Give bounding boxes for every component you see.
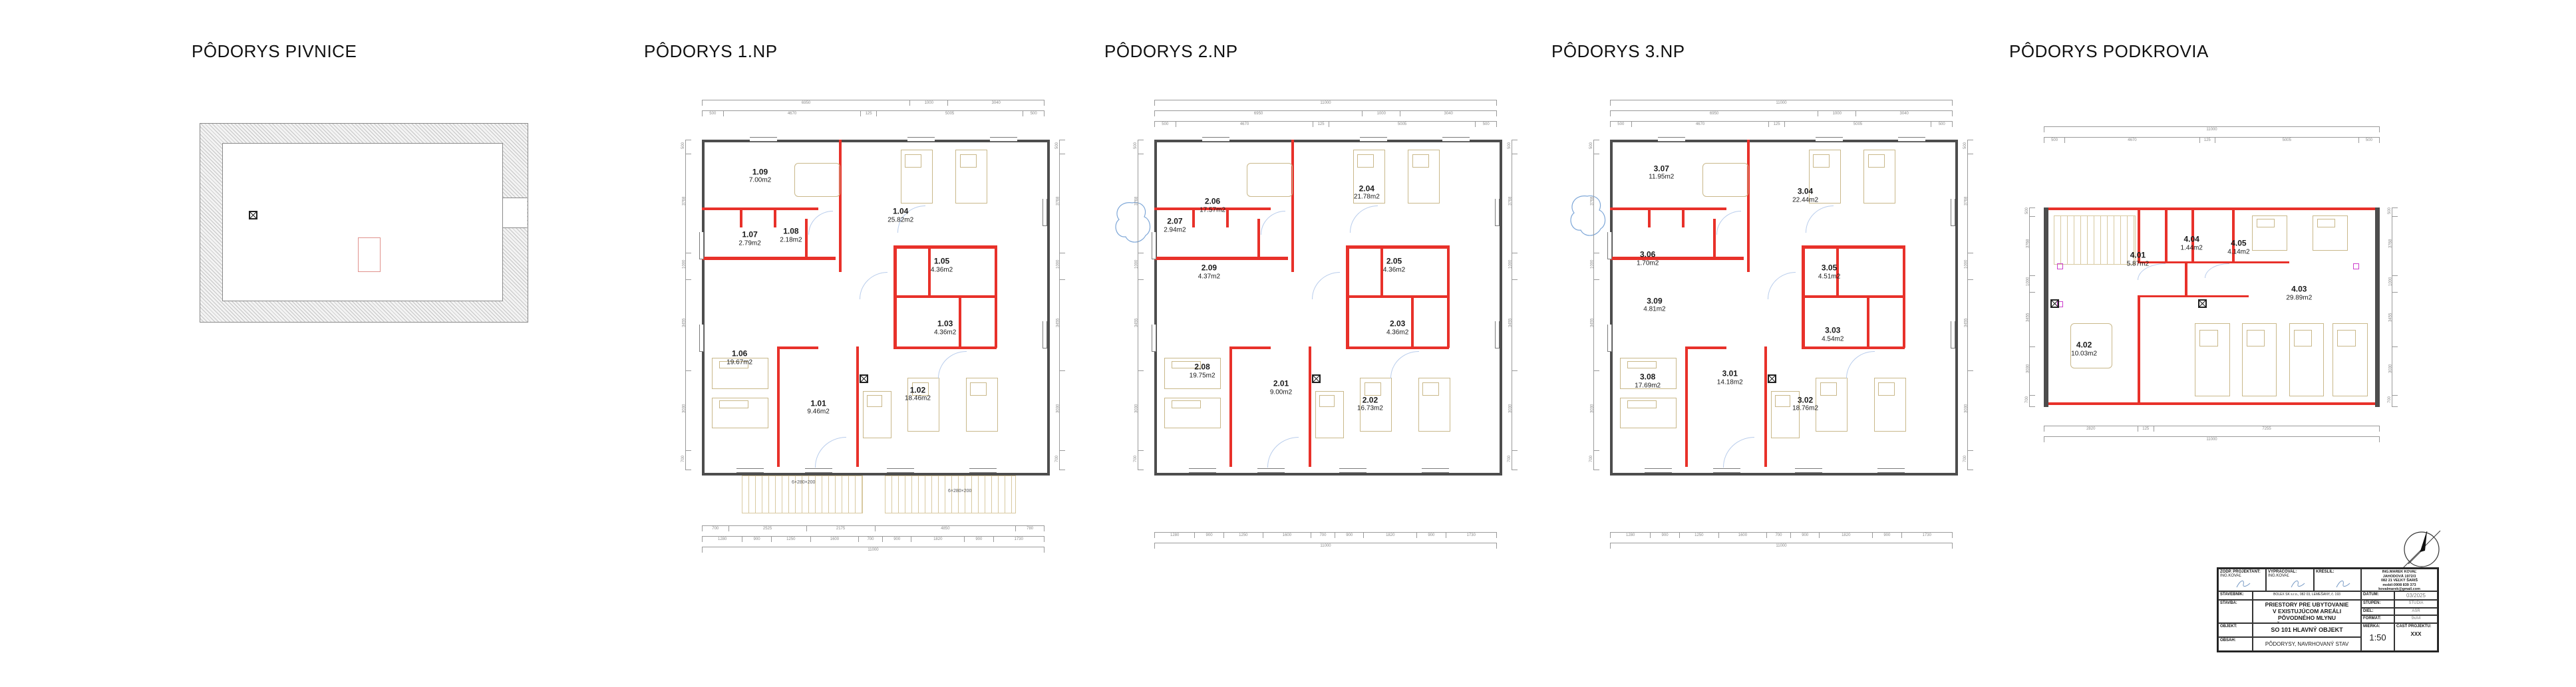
dimension-label: 11000 (1610, 100, 1953, 106)
dimension-label: 1820 (1364, 532, 1417, 538)
floorplan-1np: 1.019.46m21.0218.46m21.034.36m21.0425.82… (702, 140, 1045, 470)
tb-diel-value: ASR (2394, 608, 2438, 615)
dimension-label: 700 (1311, 532, 1335, 538)
dimension-chain: 695010003040 (1610, 110, 1953, 116)
tb-cast-label: ČASŤ PROJEKTU: (2396, 624, 2436, 628)
dimension-label: 1250 (1224, 532, 1263, 538)
tree-icon (1112, 200, 1152, 246)
tb-datum-value: 03/2025 (2394, 591, 2438, 600)
dimension-label: 6950 (702, 100, 910, 106)
dimension-label: 700 (1059, 451, 1065, 470)
room-label: 2.034.36m2 (1386, 320, 1408, 337)
dimension-total: 11000 (2044, 126, 2380, 132)
dimension-label: 500 (685, 140, 691, 154)
window-icon (1877, 468, 1905, 473)
new-wall (893, 346, 997, 349)
window-icon (1898, 137, 1925, 142)
dimension-label: 500 (1931, 121, 1953, 127)
tb-stavba-cell: PRIESTORY PRE UBYTOVANIE V EXISTUJÚCOM A… (2253, 600, 2361, 623)
new-wall (1346, 245, 1449, 248)
dimension-label: 1280 (1154, 532, 1195, 538)
dimension-label: 3040 (1400, 110, 1497, 116)
new-wall (1903, 245, 1905, 348)
dimension-label: 1000 (1967, 253, 1973, 280)
dimension-label: 1600 (1263, 532, 1311, 538)
room-label: 3.0422.44m2 (1792, 188, 1818, 204)
plan-title-2np: PÔDORYS 2.NP (1104, 41, 1238, 62)
new-wall (1802, 245, 1905, 248)
window-icon (1645, 468, 1672, 473)
bed-furniture (1874, 378, 1906, 432)
dimension-chain: 5003768100034553030700 (1967, 140, 1973, 470)
window-icon (736, 468, 764, 473)
room-label: 3.061.70m2 (1637, 250, 1659, 267)
bed-furniture (2242, 323, 2277, 396)
room-label: 3.0711.95m2 (1649, 164, 1674, 181)
window-icon (1951, 321, 1955, 348)
room-label: 1.082.18m2 (780, 227, 802, 243)
room-label: 1.034.36m2 (934, 320, 956, 337)
new-wall (1682, 207, 1685, 227)
dimension-label: 1730 (1902, 532, 1953, 538)
new-wall (1802, 346, 1905, 349)
room-label: 3.034.54m2 (1822, 327, 1844, 343)
room-label: 4.054.14m2 (2227, 239, 2249, 255)
new-wall (856, 346, 859, 467)
room-label: 2.0819.75m2 (1190, 362, 1215, 379)
bed-furniture (1863, 150, 1895, 204)
new-wall (805, 219, 808, 260)
dimension-label: 11000 (2044, 436, 2380, 442)
door-swing (2205, 263, 2229, 278)
room-label: 1.0218.46m2 (905, 386, 931, 402)
bed-furniture (2252, 215, 2287, 251)
window-icon (907, 137, 935, 142)
dining-table-furniture (1702, 163, 1748, 198)
window-icon (699, 325, 704, 352)
dimension-total: 11000 (1154, 100, 1497, 106)
new-wall (774, 207, 776, 227)
dimension-label: 1730 (1446, 532, 1498, 538)
column-marker-icon (2198, 299, 2207, 308)
floorplan-2np: 2.019.00m22.0216.73m22.034.36m22.0421.78… (1154, 140, 1497, 470)
dimension-label: 700 (1512, 451, 1518, 470)
dimension-chain: 700252521754850780 (702, 525, 1045, 531)
dimension-label: 500 (2029, 207, 2035, 217)
dimension-total: 11000 (2044, 436, 2380, 442)
window-icon (1360, 137, 1387, 142)
new-wall (893, 295, 997, 298)
dimension-label: 4670 (1632, 121, 1770, 127)
dimension-label: 7255 (2154, 426, 2380, 432)
window-icon (1152, 325, 1156, 352)
dimension-label: 900 (1651, 532, 1679, 538)
dimension-label: 1250 (772, 536, 811, 542)
room-label: 2.0617.57m2 (1200, 198, 1225, 214)
basement-red-feature (358, 237, 381, 272)
dimension-label: 900 (1417, 532, 1446, 538)
new-wall (2165, 207, 2168, 263)
dimension-label: 780 (1016, 525, 1045, 531)
tb-contact-phone: mobil:0908 839 373 (2363, 583, 2436, 588)
window-icon (699, 232, 704, 259)
dimension-label: 1600 (1719, 532, 1767, 538)
dimension-chain: 12809001250160070090018209001730 (1610, 532, 1953, 538)
dimension-label: 500 (1023, 110, 1045, 116)
room-label: 1.0425.82m2 (887, 207, 913, 224)
dimension-label: 3455 (1512, 280, 1518, 371)
column-marker-icon (1768, 374, 1776, 383)
dimension-chain: 50046701255005500 (1610, 121, 1953, 127)
tb-format-value: 9xA4 (2394, 615, 2438, 623)
room-label: 3.094.81m2 (1643, 297, 1665, 313)
dimension-chain: 5003768100034553030700 (1512, 140, 1518, 470)
column-marker-icon (1312, 374, 1321, 383)
room-label: 4.0210.03m2 (2071, 341, 2097, 357)
plan-title-pivnice: PÔDORYS PIVNICE (192, 41, 357, 62)
new-wall (839, 140, 842, 272)
new-wall (1447, 245, 1450, 348)
dimension-label: 1280 (702, 536, 742, 542)
floorplan-pivnice (200, 123, 527, 321)
dimension-label: 3455 (2392, 293, 2398, 347)
room-label: 3.054.51m2 (1818, 263, 1840, 280)
bed-furniture (1418, 378, 1450, 432)
stair-note: 6×280×200 (792, 480, 815, 485)
new-wall (1685, 346, 1726, 349)
new-wall (893, 245, 896, 348)
dimension-label: 11000 (1154, 543, 1497, 549)
dimension-label: 1820 (1820, 532, 1873, 538)
new-wall (1229, 346, 1271, 349)
dimension-label: 1000 (910, 100, 948, 106)
window-icon (750, 137, 777, 142)
new-wall (1685, 346, 1688, 467)
dimension-label: 500 (1512, 140, 1518, 154)
window-icon (1422, 468, 1449, 473)
dimension-label: 1820 (911, 536, 965, 542)
dimension-label: 1250 (1680, 532, 1719, 538)
dimension-label: 5005 (1785, 121, 1932, 127)
dimension-label: 11000 (1154, 100, 1497, 106)
dimension-label: 3040 (948, 100, 1045, 106)
bed-furniture (2333, 323, 2368, 396)
dimension-label: 3768 (1138, 154, 1144, 253)
bed-furniture (1164, 398, 1220, 429)
dimension-label: 5005 (1329, 121, 1476, 127)
dimension-label: 3455 (685, 280, 691, 371)
bed-furniture (2313, 215, 2348, 251)
dimension-label: 11000 (702, 547, 1045, 553)
existing-wall (2375, 207, 2380, 407)
dimension-label: 3455 (2029, 293, 2035, 347)
dimension-label: 4670 (2065, 137, 2200, 143)
new-wall (702, 257, 836, 259)
dimension-label: 1000 (685, 253, 691, 280)
dining-table-furniture (794, 163, 840, 198)
column-marker-icon (2050, 299, 2059, 308)
window-icon (990, 137, 1017, 142)
plan-title-1np: PÔDORYS 1.NP (644, 41, 778, 62)
dimension-label: 500 (1059, 140, 1065, 154)
dimension-label: 700 (685, 451, 691, 470)
dimension-total: 11000 (1154, 543, 1497, 549)
dimension-chain: 5003768100034553030700 (1138, 140, 1144, 470)
window-icon (1152, 232, 1156, 259)
dimension-total: 11000 (1610, 100, 1953, 106)
room-label: 2.019.00m2 (1270, 379, 1292, 396)
dimension-label: 700 (2029, 396, 2035, 407)
tb-diel-label: DIEL: (2361, 608, 2394, 615)
dimension-label: 3030 (1138, 371, 1144, 451)
dimension-label: 1280 (1610, 532, 1651, 538)
new-wall (1226, 207, 1229, 227)
new-wall (1610, 257, 1744, 259)
bed-furniture (2289, 323, 2325, 396)
dimension-label: 700 (1967, 451, 1973, 470)
dimension-label: 900 (1791, 532, 1820, 538)
new-wall (1747, 140, 1750, 272)
window-icon (1257, 468, 1285, 473)
window-icon (1607, 325, 1612, 352)
tb-zodp-cell: ZODP. PROJEKTANT: ING.KOVAĽ (2218, 569, 2266, 591)
magenta-marker-icon (2057, 263, 2063, 269)
dimension-label: 1730 (994, 536, 1045, 542)
new-wall (1346, 245, 1349, 348)
tb-mierka-label: MIERKA: (2363, 624, 2392, 628)
room-label: 1.072.79m2 (738, 230, 760, 247)
dimension-label: 900 (1873, 532, 1901, 538)
tb-mierka-value: 1:50 (2363, 632, 2392, 642)
floorplan-podkrovie: 4.015.87m24.0210.03m24.0329.89m24.041.44… (2044, 207, 2380, 407)
window-icon (1495, 321, 1500, 348)
bed-furniture (712, 398, 768, 429)
dimension-label: 3768 (2392, 217, 2398, 277)
tb-format-label: FORMÁT: (2361, 615, 2394, 623)
dimension-label: 5005 (2215, 137, 2359, 143)
dimension-label: 1000 (1059, 253, 1065, 280)
dimension-label: 700 (702, 525, 729, 531)
dimension-label: 1000 (1512, 253, 1518, 280)
new-wall (1802, 295, 1905, 298)
dimension-chain: 695010003040 (1154, 110, 1497, 116)
window-icon (969, 468, 997, 473)
tb-kreslil-label: KRESLIL: (2316, 570, 2359, 574)
dimension-label: 3455 (1138, 280, 1144, 371)
tb-objekt-label: OBJEKT: (2218, 623, 2253, 637)
room-label: 2.054.36m2 (1383, 257, 1405, 273)
dimension-label: 6950 (1154, 110, 1363, 116)
dimension-label: 3030 (2392, 347, 2398, 395)
dimension-label: 500 (1967, 140, 1973, 154)
dimension-label: 3030 (685, 371, 691, 451)
dimension-label: 125 (2138, 426, 2154, 432)
dimension-label: 3768 (1593, 154, 1599, 253)
new-wall (893, 245, 997, 248)
room-label: 4.041.44m2 (2181, 235, 2203, 251)
tb-stavba-line1: PRIESTORY PRE UBYTOVANIE (2255, 601, 2359, 608)
room-label: 3.0114.18m2 (1717, 369, 1743, 386)
tb-stavebnik-label: STAVEBNÍK: (2218, 591, 2253, 600)
new-wall (2138, 295, 2249, 297)
dimension-label: 1000 (1363, 110, 1400, 116)
bed-furniture (2195, 323, 2230, 396)
room-label: 3.0218.76m2 (1792, 396, 1818, 412)
tb-vypracoval-value: ING.KOVAĽ (2268, 574, 2312, 578)
tb-cast-value: XXX (2396, 631, 2436, 637)
new-wall (1867, 295, 1869, 348)
room-label: 1.097.00m2 (749, 168, 771, 184)
dimension-label: 500 (2392, 207, 2398, 217)
dimension-chain: 50046701255005500 (2044, 137, 2380, 143)
room-label: 2.072.94m2 (1164, 217, 1186, 234)
tb-cast-cell: ČASŤ PROJEKTU: XXX (2394, 623, 2438, 651)
dimension-label: 700 (1593, 451, 1599, 470)
dimension-label: 6950 (1610, 110, 1818, 116)
dimension-label: 900 (965, 536, 993, 542)
bed-furniture (955, 150, 987, 204)
room-label: 1.054.36m2 (931, 257, 953, 273)
magenta-marker-icon (2353, 263, 2359, 269)
dimension-label: 3768 (685, 154, 691, 253)
dimension-label: 1000 (1593, 253, 1599, 280)
window-icon (1607, 232, 1612, 259)
dimension-chain: 695010003040 (702, 100, 1045, 106)
dimension-label: 3768 (1059, 154, 1065, 253)
dimension-label: 500 (2359, 137, 2380, 143)
new-wall (702, 207, 818, 210)
dimension-label: 3030 (1967, 371, 1973, 451)
dimension-label: 3768 (1967, 154, 1973, 253)
tree-icon (1567, 193, 1607, 239)
tb-stavba-label: STAVBA: (2218, 600, 2253, 623)
tb-obsah-label: OBSAH: (2218, 637, 2253, 651)
new-wall (1257, 219, 1260, 260)
window-icon (1189, 468, 1216, 473)
dimension-chain: 28201257255 (2044, 426, 2380, 432)
window-icon (1442, 137, 1470, 142)
dimension-label: 500 (1610, 121, 1632, 127)
dimension-chain: 5003768100034553030700 (685, 140, 691, 470)
dimension-label: 1000 (1818, 110, 1856, 116)
dimension-label: 500 (2044, 137, 2065, 143)
exterior-stairs (885, 476, 1016, 513)
plan-title-podkrovie: PÔDORYS PODKROVIA (2009, 41, 2209, 62)
new-wall (2138, 207, 2231, 209)
window-icon (1795, 468, 1822, 473)
tb-mierka-cell: MIERKA: 1:50 (2361, 623, 2394, 651)
dimension-chain: 50046701255005500 (702, 110, 1045, 116)
tb-zodp-value: ING.KOVAĽ (2220, 574, 2264, 578)
dimension-label: 900 (742, 536, 771, 542)
dimension-label: 3768 (2029, 217, 2035, 277)
dimension-total: 11000 (702, 547, 1045, 553)
dimension-chain: 5003768100034553030700 (2029, 207, 2035, 407)
existing-wall (2044, 207, 2048, 407)
new-wall (1648, 207, 1651, 227)
dimension-label: 3768 (1512, 154, 1518, 253)
bed-furniture (901, 150, 933, 204)
dimension-label: 2175 (807, 525, 876, 531)
new-wall (2044, 402, 2380, 405)
tb-obsah-value: PÔDORYSY, NAVRHOVANÝ STAV (2253, 637, 2361, 651)
dimension-chain: 5003768100034553030700 (2392, 207, 2398, 407)
window-icon (1951, 199, 1955, 226)
dimension-label: 3030 (1059, 371, 1065, 451)
dimension-label: 1000 (1138, 253, 1144, 280)
staircase (2054, 215, 2136, 265)
dimension-label: 900 (1195, 532, 1223, 538)
new-wall (1713, 219, 1716, 260)
tb-contact-city: 082 21 VEĽKÝ ŠARIŠ (2363, 579, 2436, 583)
room-label: 1.0619.67m2 (726, 349, 752, 366)
dimension-label: 3455 (1593, 280, 1599, 371)
new-wall (2185, 261, 2187, 297)
new-wall (1229, 346, 1232, 467)
tb-stupen-value: ŠTÚDIA (2394, 600, 2438, 608)
room-label: 2.094.37m2 (1198, 263, 1220, 280)
dimension-label: 3030 (1512, 371, 1518, 451)
column-marker-icon (860, 374, 868, 383)
window-icon (1043, 199, 1047, 226)
new-wall (1192, 207, 1195, 227)
basement-opening (503, 198, 527, 228)
dimension-label: 3455 (1967, 280, 1973, 371)
basement-interior (222, 143, 503, 301)
room-label: 4.0329.89m2 (2286, 285, 2312, 301)
stair-note: 6×280×200 (948, 489, 971, 493)
dimension-label: 900 (883, 536, 911, 542)
tb-stupen-label: STUPEŇ: (2361, 600, 2394, 608)
dimension-chain: 12809001250160070090018209001730 (702, 536, 1045, 542)
new-wall (995, 245, 997, 348)
dimension-label: 1600 (811, 536, 859, 542)
bed-furniture (1620, 398, 1676, 429)
bed-furniture (863, 391, 891, 439)
window-icon (1816, 137, 1843, 142)
new-wall (1346, 346, 1449, 349)
bed-furniture (1315, 391, 1344, 439)
dimension-label: 11000 (1610, 543, 1953, 549)
room-label: 4.015.87m2 (2127, 251, 2149, 267)
tb-objekt-value: SO 101 HLAVNÝ OBJEKT (2253, 623, 2361, 637)
dimension-label: 5005 (877, 110, 1024, 116)
window-icon (1339, 468, 1367, 473)
dimension-chain: 5003768100034553030700 (1059, 140, 1065, 470)
tb-vypracoval-cell: VYPRACOVAL: ING.KOVAĽ (2266, 569, 2314, 591)
dimension-label: 500 (1154, 121, 1176, 127)
dimension-label: 500 (1593, 140, 1599, 154)
new-wall (1764, 346, 1767, 467)
plan-title-3np: PÔDORYS 3.NP (1551, 41, 1685, 62)
dimension-label: 1000 (2029, 276, 2035, 293)
tb-contact-name: ING.MAREK KOVAĽ (2363, 570, 2436, 575)
room-label: 1.019.46m2 (807, 399, 829, 416)
room-label: 3.0817.69m2 (1635, 372, 1661, 389)
tb-contact-cell: ING.MAREK KOVAĽ JAHODOVÁ 1972/3 082 21 V… (2361, 569, 2438, 591)
drawing-sheet: PÔDORYS PIVNICE PÔDORYS 1.NP PÔDORYS 2.N… (0, 0, 2576, 687)
window-icon (1658, 137, 1685, 142)
dimension-chain: 12809001250160070090018209001730 (1154, 532, 1497, 538)
dimension-label: 125 (861, 110, 876, 116)
dimension-label: 1000 (2392, 276, 2398, 293)
new-wall (1610, 207, 1726, 210)
dimension-chain: 5003768100034553030700 (1593, 140, 1599, 470)
new-wall (777, 346, 780, 467)
tb-stavebnik-value: BOLEX SK s.r.o., 082 03, LEMEŠANY, č. 19… (2253, 591, 2361, 600)
dimension-label: 125 (1313, 121, 1329, 127)
dimension-label: 4670 (724, 110, 862, 116)
